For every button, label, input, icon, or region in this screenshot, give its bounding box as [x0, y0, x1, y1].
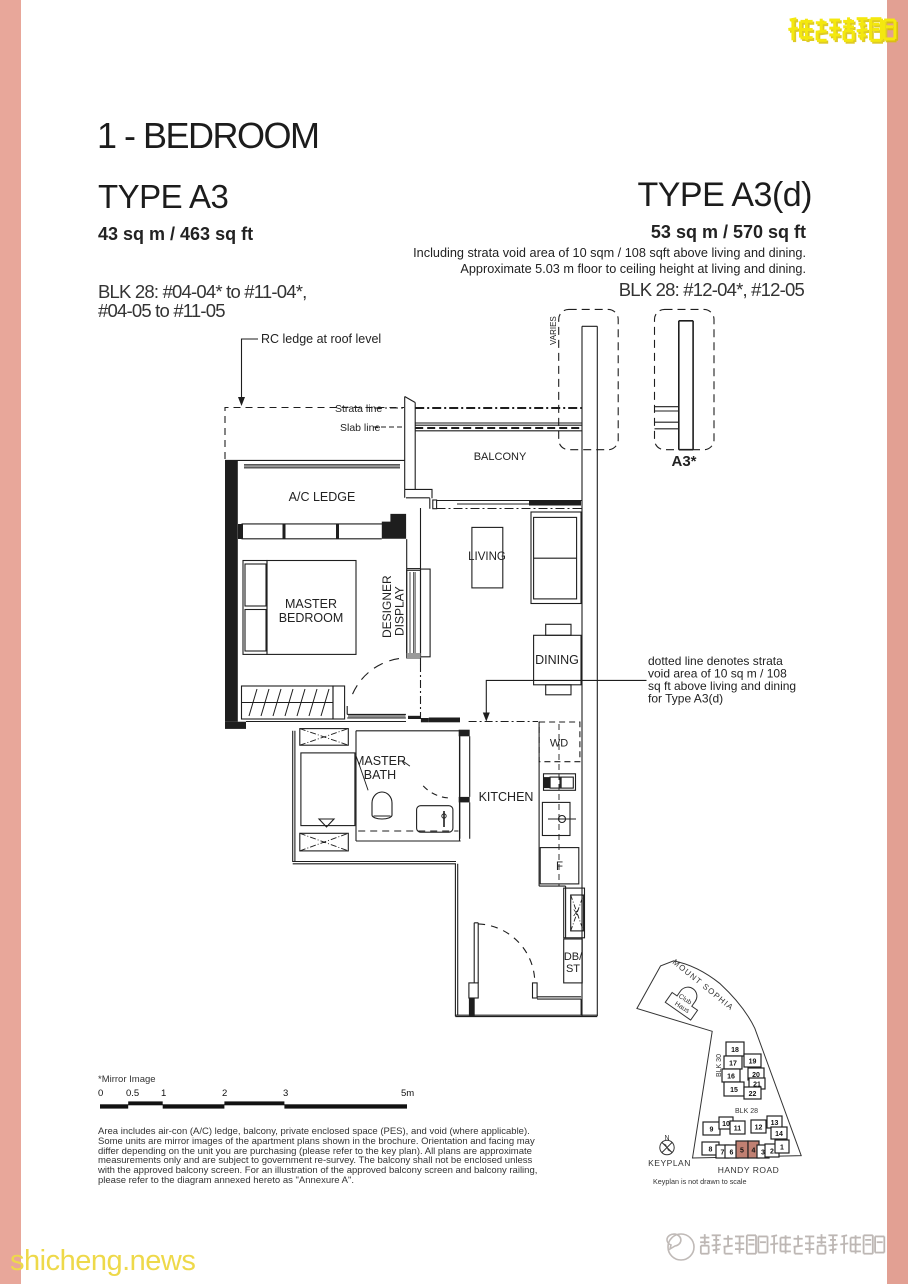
- svg-text:WD: WD: [550, 738, 568, 750]
- svg-text:BATH: BATH: [364, 768, 396, 782]
- svg-text:MASTER: MASTER: [285, 597, 337, 611]
- svg-text:BEDROOM: BEDROOM: [279, 611, 344, 625]
- svg-text:19: 19: [749, 1059, 757, 1066]
- svg-text:7: 7: [721, 1150, 725, 1157]
- svg-text:8: 8: [709, 1147, 713, 1154]
- svg-text:Slab line: Slab line: [340, 422, 380, 434]
- svg-text:A/C LEDGE: A/C LEDGE: [289, 490, 356, 504]
- svg-text:for Type A3(d): for Type A3(d): [648, 692, 723, 706]
- svg-text:F: F: [556, 861, 563, 873]
- svg-text:DB/: DB/: [564, 951, 583, 963]
- svg-text:BALCONY: BALCONY: [474, 451, 527, 463]
- svg-text:22: 22: [749, 1091, 757, 1098]
- svg-text:15: 15: [730, 1087, 738, 1094]
- svg-text:DINING: DINING: [535, 653, 579, 667]
- svg-text:VARIES: VARIES: [549, 316, 558, 345]
- svg-text:RC ledge at roof level: RC ledge at roof level: [261, 332, 381, 346]
- svg-text:0: 0: [98, 1088, 103, 1099]
- svg-text:LIVING: LIVING: [468, 551, 506, 563]
- svg-text:A3*: A3*: [671, 453, 696, 470]
- svg-text:ST: ST: [566, 963, 580, 975]
- svg-text:BLK 28: BLK 28: [735, 1108, 758, 1115]
- svg-text:KITCHEN: KITCHEN: [479, 790, 534, 804]
- svg-text:1: 1: [780, 1145, 784, 1152]
- svg-text:4: 4: [752, 1148, 756, 1155]
- svg-text:11: 11: [734, 1126, 742, 1133]
- svg-text:13: 13: [771, 1120, 779, 1127]
- svg-text:X: X: [573, 908, 579, 918]
- svg-text:DISPLAY: DISPLAY: [393, 586, 407, 636]
- svg-text:3: 3: [283, 1088, 288, 1099]
- svg-text:17: 17: [729, 1061, 737, 1068]
- svg-text:18: 18: [731, 1047, 739, 1054]
- svg-text:Strata line: Strata line: [335, 403, 382, 415]
- svg-text:16: 16: [727, 1074, 735, 1081]
- svg-text:12: 12: [755, 1125, 763, 1132]
- svg-text:5m: 5m: [401, 1088, 414, 1099]
- svg-text:HANDY ROAD: HANDY ROAD: [718, 1165, 780, 1175]
- svg-text:KEYPLAN: KEYPLAN: [648, 1158, 691, 1168]
- svg-text:2: 2: [222, 1088, 227, 1099]
- svg-text:10: 10: [722, 1121, 730, 1128]
- svg-text:14: 14: [775, 1131, 783, 1138]
- svg-text:1: 1: [161, 1088, 166, 1099]
- svg-text:5: 5: [740, 1148, 744, 1155]
- svg-text:0.5: 0.5: [126, 1088, 139, 1099]
- svg-text:MASTER: MASTER: [354, 754, 406, 768]
- svg-text:shicheng.news: shicheng.news: [10, 1245, 195, 1277]
- svg-text:9: 9: [710, 1127, 714, 1134]
- svg-text:6: 6: [730, 1150, 734, 1157]
- svg-text:BLK 30: BLK 30: [716, 1054, 723, 1077]
- svg-text:2: 2: [770, 1149, 774, 1156]
